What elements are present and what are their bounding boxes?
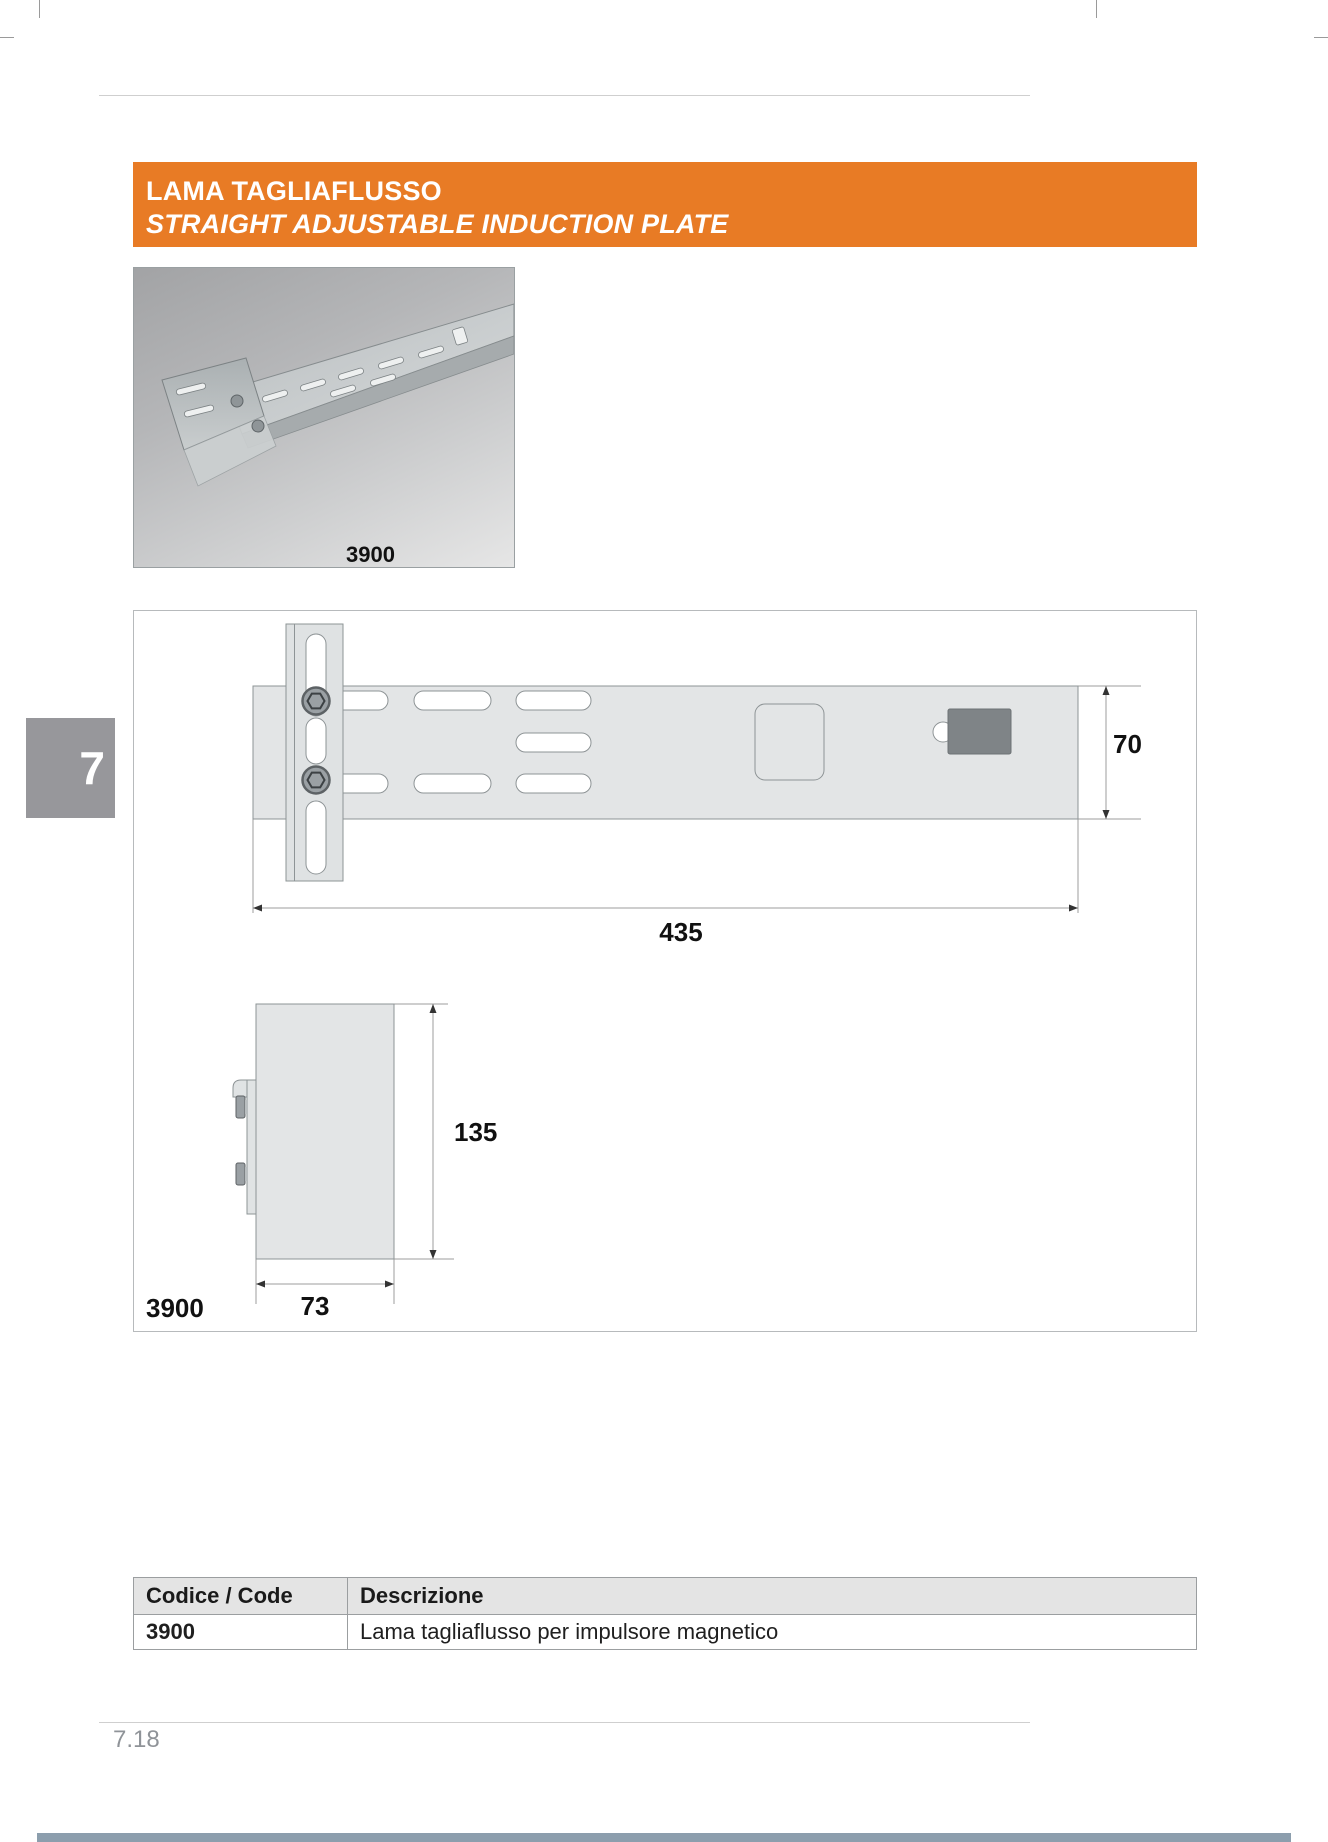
- technical-drawing: [134, 611, 1196, 1331]
- title-banner: LAMA TAGLIAFLUSSO STRAIGHT ADJUSTABLE IN…: [133, 162, 1197, 247]
- cell-description: Lama tagliaflusso per impulsore magnetic…: [348, 1615, 1197, 1650]
- cropmark-top-right-v: [1096, 0, 1097, 18]
- col-header-code: Codice / Code: [134, 1578, 348, 1615]
- photo-caption-code: 3900: [346, 542, 395, 568]
- page-number: 7.18: [113, 1726, 160, 1754]
- top-rule: [99, 95, 1030, 96]
- drawing-code: 3900: [146, 1293, 204, 1324]
- col-header-description: Descrizione: [348, 1578, 1197, 1615]
- dimension-length-435: 435: [659, 917, 702, 948]
- title-english: STRAIGHT ADJUSTABLE INDUCTION PLATE: [146, 209, 1197, 241]
- table-row: 3900 Lama tagliaflusso per impulsore mag…: [134, 1615, 1197, 1650]
- product-photo-illustration: [134, 268, 514, 567]
- cropmark-top-right-h: [1314, 37, 1328, 38]
- bottom-color-bar: [37, 1833, 1291, 1842]
- spec-table-header-row: Codice / Code Descrizione: [134, 1578, 1197, 1615]
- dimension-height-135: 135: [454, 1117, 497, 1148]
- dimension-width-70: 70: [1113, 729, 1142, 760]
- chapter-tab: 7: [26, 718, 115, 818]
- cropmark-top-left-v: [39, 0, 40, 18]
- footer-rule: [99, 1722, 1030, 1723]
- technical-drawing-box: 70 435 135 73 3900: [133, 610, 1197, 1332]
- cropmark-top-left-h: [0, 37, 14, 38]
- cell-code: 3900: [134, 1615, 348, 1650]
- chapter-number: 7: [79, 741, 105, 795]
- title-italian: LAMA TAGLIAFLUSSO: [146, 176, 1197, 208]
- product-photo: 3900: [133, 267, 515, 568]
- spec-table: Codice / Code Descrizione 3900 Lama tagl…: [133, 1577, 1197, 1650]
- dimension-depth-73: 73: [301, 1291, 330, 1322]
